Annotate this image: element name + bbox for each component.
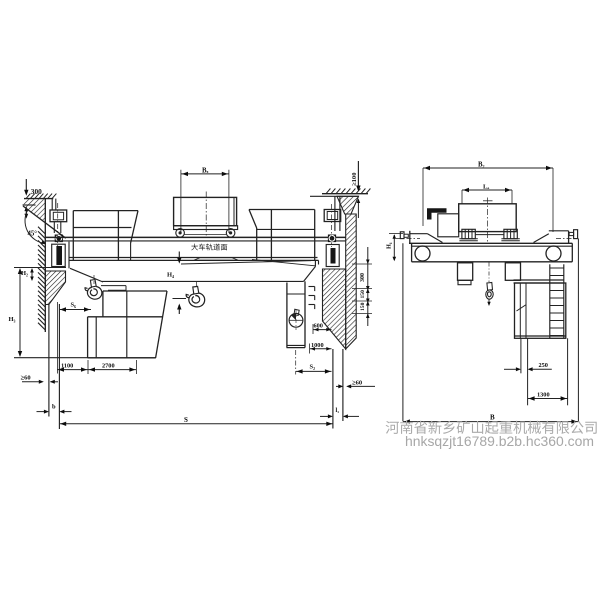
svg-text:S₂: S₂ <box>310 364 316 371</box>
svg-text:250: 250 <box>539 362 548 369</box>
svg-text:2700: 2700 <box>102 363 115 370</box>
svg-text:H₂: H₂ <box>21 270 28 277</box>
svg-text:300: 300 <box>360 273 366 282</box>
svg-text:H₁: H₁ <box>386 242 393 249</box>
svg-text:H₄: H₄ <box>167 272 174 279</box>
svg-text:≥60: ≥60 <box>352 380 362 387</box>
svg-text:1300: 1300 <box>537 392 550 399</box>
svg-text:Lₐ: Lₐ <box>483 183 489 190</box>
svg-text:S₆: S₆ <box>71 302 77 309</box>
svg-text:≥100: ≥100 <box>351 172 358 186</box>
svg-text:hnksqzjt16789.b2b.hc360.com: hnksqzjt16789.b2b.hc360.com <box>405 434 594 449</box>
svg-text:B: B <box>490 413 495 421</box>
svg-text:S: S <box>184 416 188 424</box>
svg-text:≥60: ≥60 <box>21 375 31 382</box>
svg-text:l₁: l₁ <box>336 407 340 414</box>
svg-text:150: 150 <box>360 290 366 299</box>
svg-text:b: b <box>52 404 56 411</box>
svg-text:150: 150 <box>360 302 366 311</box>
svg-text:300: 300 <box>31 187 42 196</box>
svg-text:B₂: B₂ <box>478 161 485 168</box>
svg-text:Bₓ: Bₓ <box>202 167 209 174</box>
svg-text:H₃: H₃ <box>9 316 16 323</box>
